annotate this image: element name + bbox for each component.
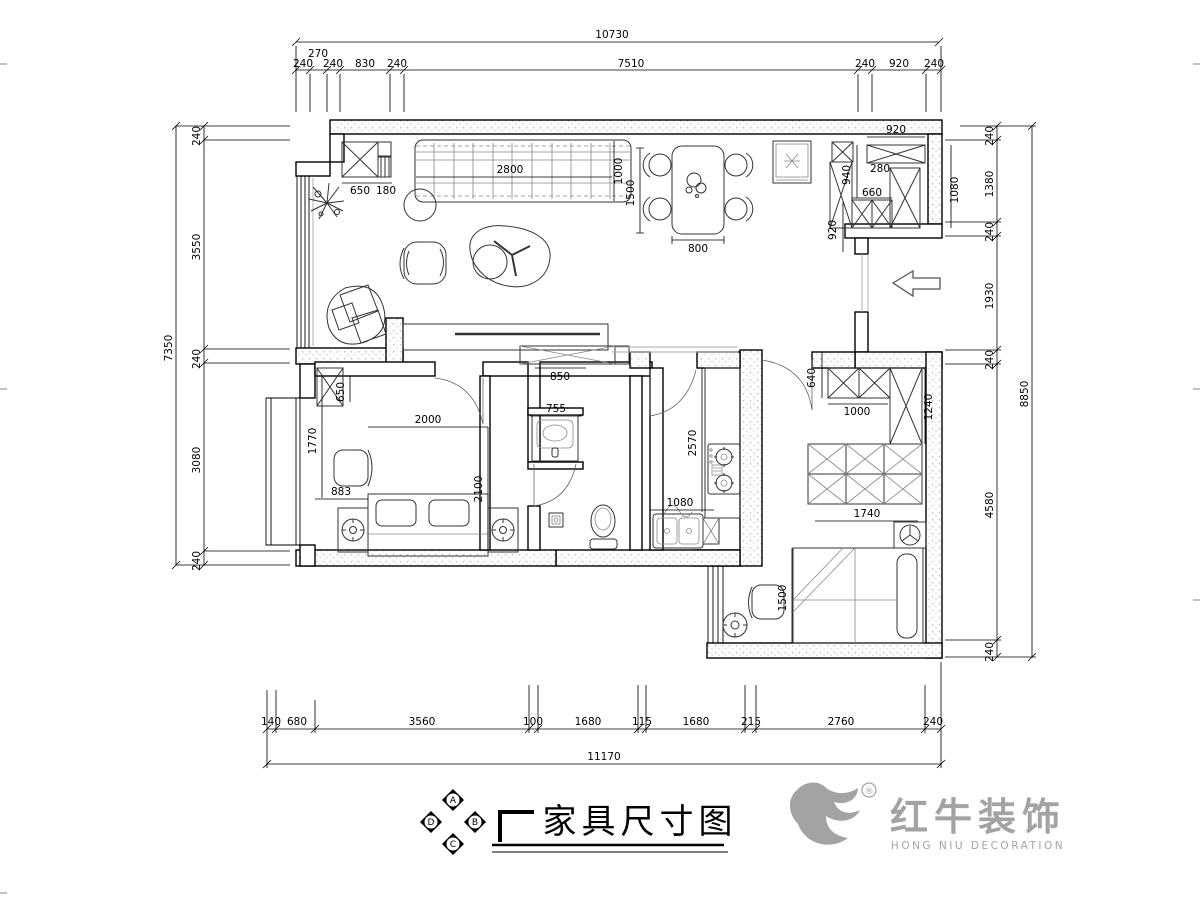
stove — [708, 444, 740, 494]
dining-chairs — [643, 153, 753, 221]
dim-top-5: 7510 — [618, 58, 645, 70]
dim-dining-l: 1500 — [625, 180, 637, 207]
compass-b: B — [472, 818, 478, 828]
dim-bottom-8: 2760 — [828, 716, 855, 728]
compass-icon: A B C D — [420, 789, 486, 855]
dim-b2-wr2: 1740 — [854, 508, 881, 520]
compass-a: A — [450, 796, 457, 806]
dim-left-2: 240 — [191, 349, 203, 369]
wall-kitchen-right — [740, 350, 762, 566]
wall-bedroom2-bottom — [707, 643, 942, 658]
dim-top-3: 830 — [355, 58, 375, 70]
page-title: 家具尺寸图 — [543, 803, 738, 841]
dim-top-6: 240 — [855, 58, 875, 70]
dim-entry-depth: 940 — [841, 165, 853, 185]
wall-bath-right — [630, 376, 642, 550]
dim-b1-side: 883 — [331, 486, 351, 498]
dim-bottom-7: 215 — [741, 716, 761, 728]
walls — [296, 120, 942, 658]
bedroom2-window — [708, 566, 723, 643]
bull-logo-icon — [790, 783, 860, 845]
dim-b2-wr-w: 1000 — [844, 406, 871, 418]
balcony-window — [297, 176, 309, 348]
dim-right-0: 240 — [984, 126, 996, 146]
dim-hall-closet2: 180 — [376, 185, 396, 197]
dim-bottom-5: 115 — [632, 716, 652, 728]
title-block: A B C D 家具尺寸图 — [420, 789, 738, 855]
bedroom1-door — [435, 378, 483, 424]
dim-left-3: 3080 — [191, 447, 203, 474]
dim-left-4: 240 — [191, 551, 203, 571]
nightstand-right — [488, 508, 518, 552]
bathroom: 755 — [530, 403, 617, 549]
wall-right-top — [928, 134, 942, 224]
dim-right-4: 240 — [984, 350, 996, 370]
brand-name: 红牛装饰 — [890, 795, 1066, 839]
table-decor — [686, 173, 706, 198]
dim-dining-w: 800 — [688, 243, 708, 255]
dim-sofa-w: 2800 — [497, 164, 524, 176]
dim-b1-bed-l: 2100 — [473, 476, 485, 503]
tv-cabinet — [403, 324, 738, 364]
wall-bedroom1-top — [315, 362, 435, 376]
corner-mark-icon — [500, 812, 534, 842]
rattan-chair — [327, 285, 386, 344]
ottoman — [404, 189, 436, 221]
armchair — [400, 242, 446, 284]
dim-hall-closet: 650 — [350, 185, 370, 197]
bedroom1-bed — [368, 494, 488, 556]
corner-lamp — [894, 522, 926, 548]
kitchen-counter — [705, 368, 740, 518]
dim-bottom-0: 140 — [261, 716, 281, 728]
dim-bottom-total: 11170 — [587, 751, 620, 763]
dim-vanity: 755 — [546, 403, 566, 415]
bedroom2-door — [762, 360, 812, 410]
dim-entry-shoe: 660 — [862, 187, 882, 199]
dim-tv-side: 850 — [550, 371, 570, 383]
dim-right-2: 240 — [984, 222, 996, 242]
dim-left-total: 7350 — [163, 335, 175, 362]
dim-right-3: 1930 — [984, 283, 996, 310]
plant — [309, 183, 344, 219]
dim-left-0: 240 — [191, 126, 203, 146]
wall-balcony-top — [296, 162, 330, 176]
dim-right-total: 8850 — [1019, 381, 1031, 408]
compass-c: C — [450, 840, 456, 850]
floor-plan-canvas: 920 940 280 660 920 1080 650 180 2800 10… — [0, 0, 1200, 900]
dim-b1-closet: 650 — [335, 382, 347, 402]
coffee-table — [470, 226, 550, 287]
nightstand-left — [338, 508, 368, 552]
sofa — [404, 140, 631, 221]
dim-b1-bed-w: 2000 — [415, 414, 442, 426]
bathroom-door — [534, 464, 576, 506]
dim-top-8: 240 — [924, 58, 944, 70]
dim-chain-bottom: 140 680 3560 100 1680 115 1680 215 2760 … — [261, 662, 945, 768]
bedroom2-lamp — [723, 613, 747, 637]
dim-bottom-3: 100 — [523, 716, 543, 728]
dim-left-1: 3550 — [191, 234, 203, 261]
dim-b1-depth: 1770 — [307, 428, 319, 455]
wall-kitchen-bottom — [556, 550, 740, 566]
wall-top — [330, 120, 942, 134]
dim-entry-gap: 280 — [870, 163, 890, 175]
dim-bottom-6: 1680 — [683, 716, 710, 728]
entry-arrow-icon — [893, 271, 940, 296]
dim-chain-top: 10730 240 270 240 830 240 7510 240 920 2… — [292, 29, 945, 112]
brand-subtitle: HONG NIU DECORATION — [891, 840, 1065, 852]
dim-entry-closet-w: 1080 — [949, 177, 961, 204]
registered-icon: ® — [865, 787, 874, 797]
bedroom2-wardrobe-top — [828, 368, 922, 444]
dim-sofa-d: 1000 — [613, 158, 625, 185]
fridge — [773, 141, 811, 183]
dim-top-4: 240 — [387, 58, 407, 70]
logo-block: ® 红牛装饰 HONG NIU DECORATION — [790, 783, 1066, 852]
dim-bottom-4: 1680 — [575, 716, 602, 728]
dim-right-5: 4580 — [984, 492, 996, 519]
dim-kt-sink: 1080 — [667, 497, 694, 509]
toilet — [590, 505, 617, 549]
dim-top-total: 10730 — [595, 29, 628, 41]
wall-kitchen-left — [650, 368, 663, 550]
bedroom2-bed — [793, 548, 923, 643]
dim-right-1: 1380 — [984, 171, 996, 198]
dim-right-6: 240 — [984, 642, 996, 662]
compass-d: D — [428, 818, 435, 828]
entry-passage — [862, 254, 868, 312]
dim-top-7: 920 — [889, 58, 909, 70]
living-room: 650 180 2800 1000 — [309, 140, 738, 383]
dim-entry-side: 920 — [827, 220, 839, 240]
dim-bottom-1: 680 — [287, 716, 307, 728]
dim-entry-wardrobe: 920 — [886, 124, 906, 136]
floor-drain-icon — [549, 513, 563, 527]
dim-b2-bed: 1500 — [777, 585, 789, 612]
dim-bottom-2: 3560 — [409, 716, 436, 728]
dim-top-2: 240 — [323, 58, 343, 70]
bedroom1-chair — [334, 450, 372, 486]
fridge-icon — [784, 154, 800, 168]
dining-area: 1500 800 — [625, 141, 811, 255]
dim-b2-closet: 1240 — [923, 394, 935, 421]
drawing-sheet: 920 940 280 660 920 1080 650 180 2800 10… — [0, 0, 1200, 900]
sheet-marks — [0, 64, 1200, 893]
dining-table — [672, 146, 724, 234]
dim-bottom-9: 240 — [923, 716, 943, 728]
dim-kt-counter: 2570 — [687, 430, 699, 457]
bedroom2-wardrobe-big — [808, 444, 922, 504]
